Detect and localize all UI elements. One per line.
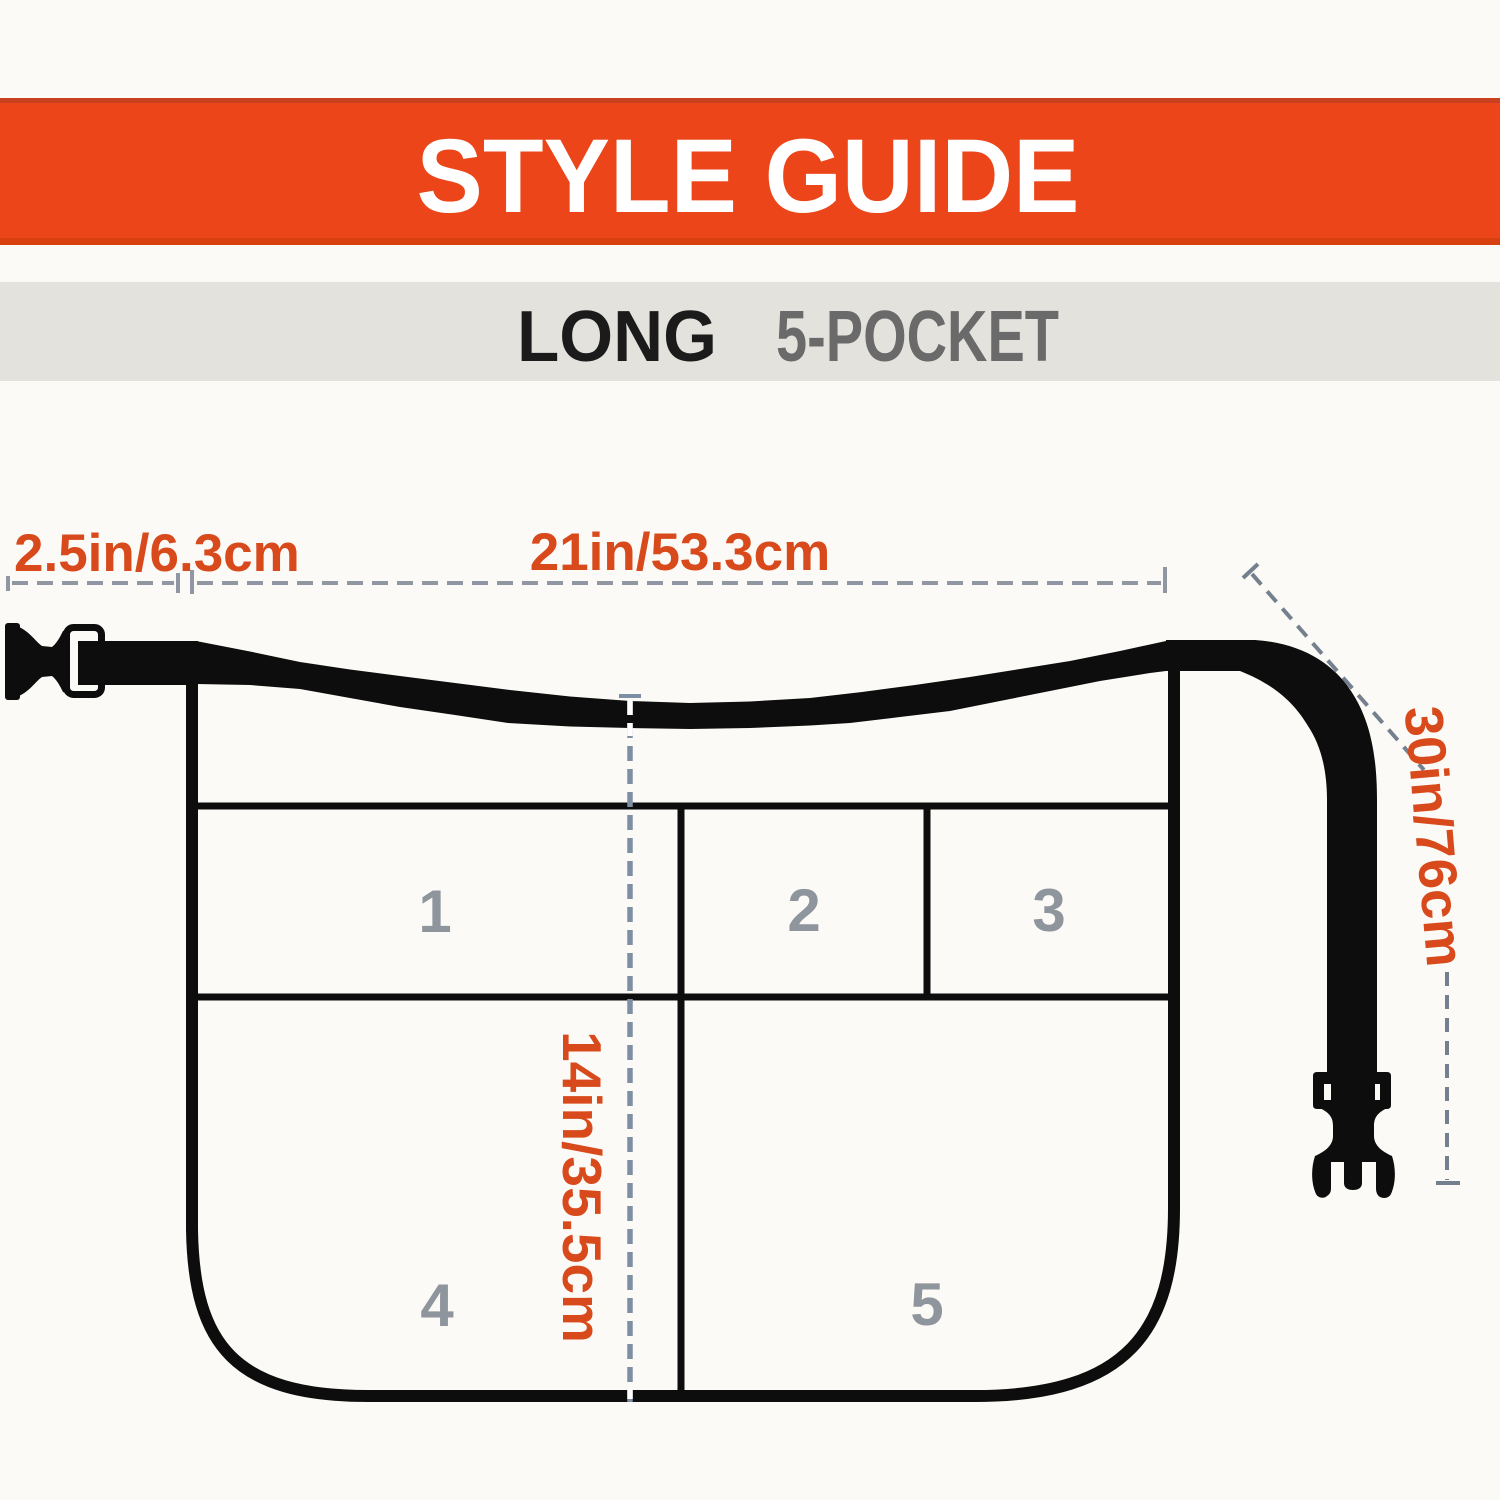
svg-text:STYLE GUIDE: STYLE GUIDE xyxy=(417,118,1080,235)
svg-text:21in/53.3cm: 21in/53.3cm xyxy=(530,523,831,582)
svg-text:2.5in/6.3cm: 2.5in/6.3cm xyxy=(14,524,300,583)
svg-text:14in/35.5cm: 14in/35.5cm xyxy=(551,1031,613,1343)
svg-text:2: 2 xyxy=(787,877,820,944)
svg-text:5: 5 xyxy=(910,1271,943,1338)
svg-text:5-POCKET: 5-POCKET xyxy=(776,297,1059,377)
svg-text:1: 1 xyxy=(418,878,451,945)
svg-text:4: 4 xyxy=(420,1272,454,1339)
svg-text:LONG: LONG xyxy=(517,297,717,377)
svg-text:3: 3 xyxy=(1032,877,1065,944)
